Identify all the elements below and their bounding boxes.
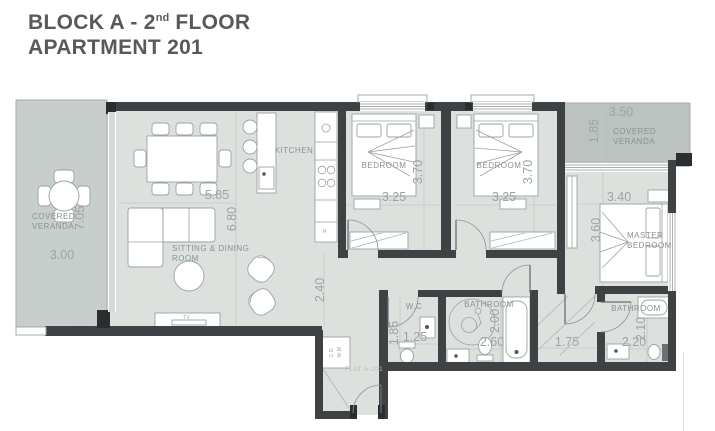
master-side-window <box>668 213 676 291</box>
kitchen-counter: R <box>315 112 337 242</box>
dim-wc-w: 1.25 <box>403 330 427 344</box>
dim-bathroom-main-w: 2.60 <box>480 335 504 349</box>
wc-label: W.C <box>406 302 423 311</box>
dim-veranda-right-h: 1.85 <box>587 119 601 143</box>
bedroom-1-label: BEDROOM <box>362 161 407 170</box>
main-bathroom-label: BATHROOM <box>464 300 514 309</box>
dim-bedroom-2-h: 3.70 <box>521 160 535 184</box>
master-bedroom-label-2: BEDROOM <box>627 241 672 250</box>
dim-master-h: 3.60 <box>589 218 603 242</box>
dim-bedroom-1-h: 3.70 <box>411 160 425 184</box>
bedroom-1-wardrobe <box>350 232 408 249</box>
dim-bathroom-main-h: 2.00 <box>488 309 502 333</box>
sitting-dining-label-1: SITTING & DINING <box>172 244 249 253</box>
floor-plan-page: BLOCK A - 2nd FLOOR APARTMENT 201 <box>0 0 715 431</box>
master-veranda-window <box>565 163 668 172</box>
hall-floor <box>338 254 565 294</box>
veranda-left-label-1: COVERED <box>32 212 75 221</box>
veranda-right-label-1: COVERED <box>613 127 656 136</box>
veranda-right-label-2: VERANDA <box>613 137 655 146</box>
master-bedroom-label-1: MASTER <box>627 231 663 240</box>
dim-bathroom-ensuite-h: 2.10 <box>634 317 648 341</box>
bedroom-2-label: BEDROOM <box>477 161 522 170</box>
dim-bedroom-1-w: 3.25 <box>382 190 406 204</box>
closet-label-cd: C.D. <box>329 347 335 358</box>
fridge-label: R <box>323 229 327 235</box>
bedroom-2-wardrobe <box>490 232 555 249</box>
sitting-dining-label-2: ROOM <box>172 254 199 263</box>
dim-veranda-left-h: 7.05 <box>73 206 87 230</box>
veranda-left-label-2: VERANDA <box>32 222 74 231</box>
flat-label: FLAT A-201 <box>345 366 383 373</box>
dim-corridor-w: 1.75 <box>555 335 579 349</box>
dim-bedroom-2-w: 3.25 <box>492 190 516 204</box>
dim-sitting-w: 5.85 <box>205 188 229 202</box>
window-sill <box>358 95 427 102</box>
ensuite-bathroom-label: BATHROOM <box>611 304 661 313</box>
bedroom-1-window <box>360 102 425 111</box>
kitchen-label: KITCHEN <box>275 146 314 155</box>
bedroom-2-window <box>473 102 532 111</box>
tv-label: TV <box>183 315 190 321</box>
dim-wc-h: 1.85 <box>387 321 401 345</box>
dim-sitting-h: 6.80 <box>225 207 239 231</box>
window-sill <box>471 95 534 102</box>
dim-veranda-left-w: 3.00 <box>50 248 74 262</box>
coffee-table <box>174 261 204 291</box>
tv-unit: TV <box>155 313 220 328</box>
dim-veranda-right-w: 3.50 <box>609 105 633 119</box>
floor-plan-drawing: TV R <box>0 0 715 431</box>
dim-hall: 2.40 <box>313 278 327 302</box>
dim-master-w: 3.40 <box>607 190 631 204</box>
living-veranda-window <box>108 112 116 312</box>
closet-label-wm: W.M <box>337 347 343 358</box>
